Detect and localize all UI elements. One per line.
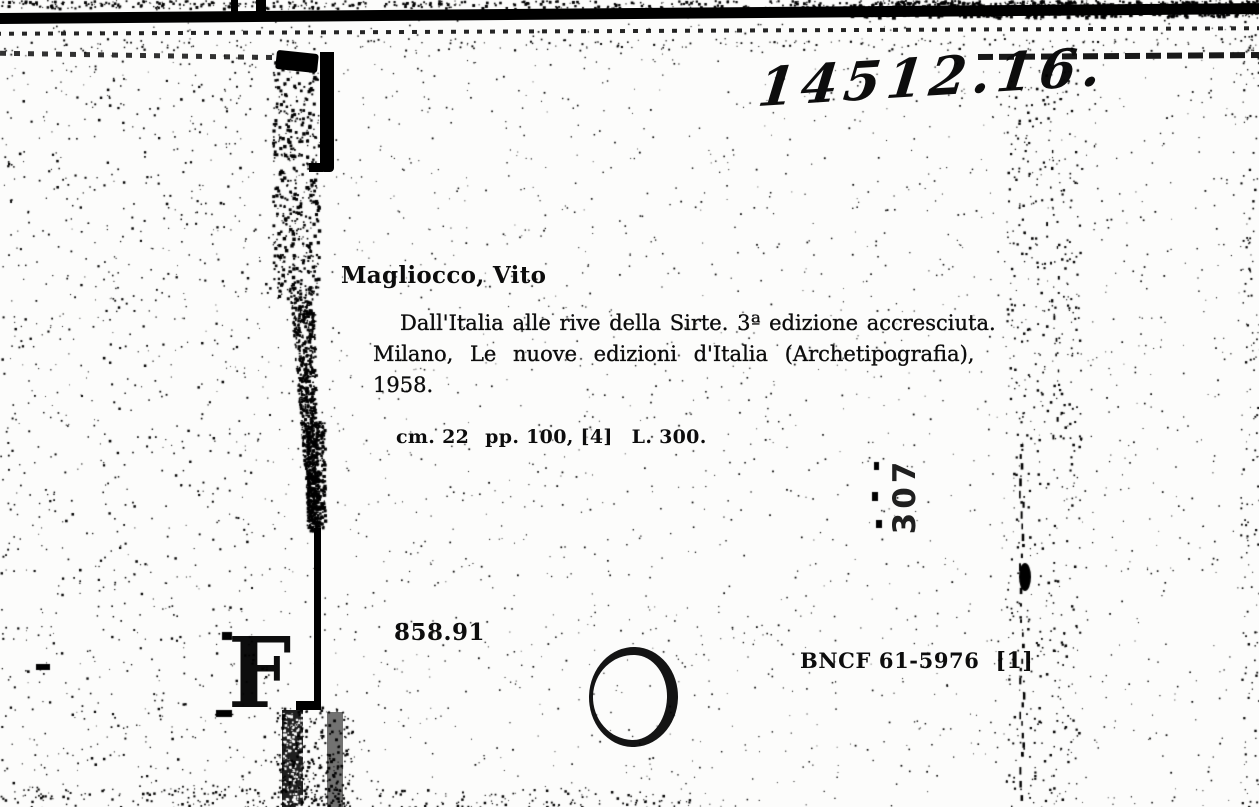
accession-line: BNCF 61-5976[1] [800, 648, 1033, 674]
scan-top-tick-mark [231, 0, 238, 16]
card-left-edge-cap [275, 50, 319, 73]
corner-letter: F [228, 634, 291, 712]
scan-top-tick-mark [256, 0, 266, 17]
scan-dashed-edge-left [0, 51, 292, 61]
card-left-edge-foot [309, 163, 323, 172]
card-left-edge-line [314, 528, 321, 704]
title-line-3: 1958. [373, 370, 1063, 401]
scan-top-edge-band [0, 3, 1259, 24]
scan-dotted-edge-line [0, 26, 1259, 36]
title-line-1: Dall'Italia alle rive della Sirte. 3ª ed… [373, 308, 1063, 339]
call-number: 858.91 [394, 619, 485, 646]
accession-number: BNCF 61-5976 [800, 648, 979, 673]
title-line-2: Milano, Le nuove edizioni d'Italia (Arch… [373, 339, 1063, 370]
collation-pages: pp. 100, [4] [485, 426, 613, 448]
oval-stamp-ring [587, 645, 679, 748]
card-left-edge-bar [320, 52, 334, 172]
collation-size: cm. 22 [396, 426, 469, 448]
title-paragraph: Dall'Italia alle rive della Sirte. 3ª ed… [373, 308, 1063, 401]
catalog-card-scan: 14512.16. Magliocco, Vito Dall'Italia al… [0, 0, 1259, 807]
card-left-edge-jog [296, 701, 321, 710]
author-heading: Magliocco, Vito [341, 262, 546, 289]
collation-line: cm. 22pp. 100, [4]L. 300. [396, 426, 707, 448]
copy-marker: [1] [995, 648, 1033, 674]
card-left-edge-stripe [327, 712, 343, 807]
collation-price: L. 300. [632, 426, 707, 448]
handwritten-shelfmark: 14512.16. [755, 35, 1121, 120]
rotated-number-stamp: 307 [887, 449, 923, 543]
